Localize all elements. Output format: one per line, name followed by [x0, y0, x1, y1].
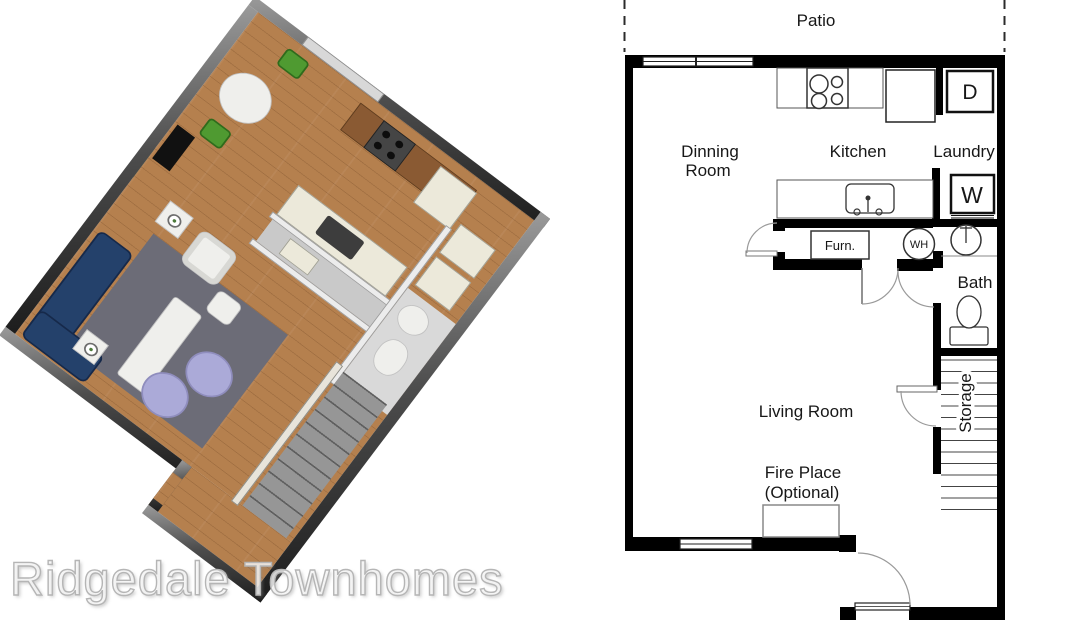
watermark-text: Ridgedale Townhomes	[10, 553, 504, 605]
label-bath: Bath	[958, 273, 993, 292]
label-dryer: D	[962, 81, 977, 104]
fireplace-box	[763, 505, 839, 537]
closet-door	[746, 223, 777, 256]
label-kitchen: Kitchen	[830, 142, 887, 161]
floor-plan-image: Ridgedale Townhomes	[0, 0, 1072, 620]
label-storage: Storage	[956, 373, 975, 433]
refrigerator	[886, 70, 935, 122]
toilet	[950, 296, 988, 345]
label-dinning-room-1: Dinning	[681, 142, 739, 161]
label-patio: Patio	[797, 11, 836, 30]
label-living-room: Living Room	[759, 402, 854, 421]
label-laundry: Laundry	[933, 142, 995, 161]
2d-floor-plan: Patio Dinning Room Kitchen Laundry Bath …	[600, 0, 1072, 620]
window-top	[643, 57, 753, 66]
entry-door	[855, 553, 910, 610]
bath-sink	[941, 225, 997, 256]
label-washer: W	[961, 182, 983, 208]
label-water-heater: WH	[910, 239, 928, 251]
hall-door-left	[862, 268, 898, 304]
plant-icon	[81, 340, 100, 359]
label-dinning-room-2: Room	[685, 161, 730, 180]
storage-door	[897, 386, 937, 426]
stove	[807, 68, 848, 109]
3d-floor-plan-render	[0, 12, 534, 587]
bath-door	[898, 271, 934, 307]
kitchen-counter-sink	[777, 180, 933, 218]
window-bottom	[680, 539, 752, 549]
plant-icon	[165, 211, 184, 230]
label-fire-place-2: (Optional)	[765, 483, 840, 502]
label-furnace: Furn.	[825, 238, 855, 253]
label-fire-place-1: Fire Place	[765, 463, 842, 482]
